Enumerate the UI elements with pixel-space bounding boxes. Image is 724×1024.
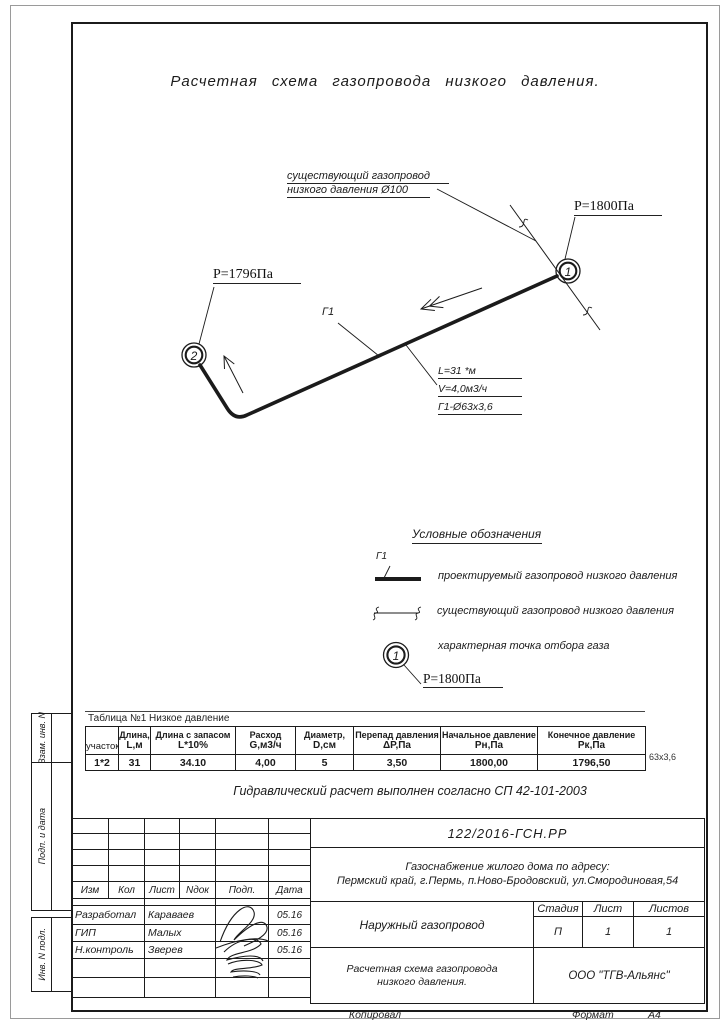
calc-table-block: Таблица №1 Низкое давление участок Длина…: [85, 711, 645, 771]
pipe-size-side-note: 63х3,6: [649, 752, 676, 762]
revision-empty-row: [72, 819, 311, 834]
dimension-note: L=31 *м V=4,0м3/ч Г1-Ø63х3,6: [438, 365, 522, 415]
legend-item-existing: существующий газопровод низкого давления: [437, 605, 674, 617]
sidebar-box-inv: Инв. N подл.: [31, 917, 72, 992]
sidebar-empty-cell: [52, 763, 71, 910]
col-header-start-pressure: Начальное давлениеРн,Па: [441, 727, 538, 755]
col-header-uchastok: участок: [86, 727, 119, 755]
company-name: ООО "ТГВ-Альянс": [534, 948, 705, 1004]
cell-length-margin: 34.10: [151, 755, 236, 771]
object-name: Наружный газопровод: [311, 902, 534, 948]
rev-header-data: Дата: [269, 882, 311, 899]
sheet-title-line1: Расчетная схема газопровода: [311, 963, 533, 976]
col-header-length: Длина,L,м: [119, 727, 151, 755]
calc-table-header-row: участок Длина,L,м Длина с запасомL*10% Р…: [86, 727, 646, 755]
legend-item-node: характерная точка отбора газа: [438, 640, 609, 652]
titleblock-main-table: 122/2016-ГСН.РР Газоснабжение жилого дом…: [310, 818, 705, 1004]
stage-value: П: [534, 917, 583, 948]
project-name-row: Газоснабжение жилого дома по адресу: Пер…: [311, 848, 705, 902]
pressure-start-label: Р=1800Па: [574, 199, 662, 216]
sheets-label: Листов: [634, 902, 705, 917]
col-header-flow: РасходG,м3/ч: [236, 727, 296, 755]
rev-header-izm: Изм: [72, 882, 109, 899]
cell-pressure-drop: 3,50: [354, 755, 441, 771]
sheets-value: 1: [634, 917, 705, 948]
dimension-flow: V=4,0м3/ч: [438, 383, 522, 397]
project-name: Газоснабжение жилого дома по адресу: Пер…: [311, 848, 705, 902]
drawing-title: Расчетная схема газопровода низкого давл…: [150, 73, 620, 90]
sheet-title-line2: низкого давления.: [311, 976, 533, 989]
sidebar-label-inv: Инв. N подл.: [37, 928, 47, 981]
existing-pipeline-label-line2: низкого давления Ø100: [287, 184, 430, 198]
revision-header-row: Изм Кол Лист Nдок Подп. Дата: [72, 882, 311, 899]
format-value: А4: [648, 1009, 661, 1021]
signer-name: Зверев: [145, 942, 216, 959]
calc-table-data-row: 1*2 31 34.10 4,00 5 3,50 1800,00 1796,50: [86, 755, 646, 771]
rev-header-kol: Кол: [109, 882, 145, 899]
existing-pipeline-label: существующий газопровод низкого давления…: [287, 170, 449, 198]
signer-role: Разработал: [72, 906, 145, 925]
sidebar-box-vzam: Взам. инв. N: [31, 713, 72, 764]
signature-cell: [216, 925, 269, 942]
rev-header-ndok: Nдок: [180, 882, 216, 899]
project-name-line2: Пермский край, г.Пермь, п.Ново-Бродовски…: [311, 875, 704, 889]
signature-empty-row: [72, 978, 311, 998]
signature-date: 05.16: [269, 942, 311, 959]
signature-empty-row: [72, 959, 311, 978]
rev-header-podp: Подп.: [216, 882, 269, 899]
col-header-pressure-drop: Перепад давленияΔР,Па: [354, 727, 441, 755]
cell-uchastok: 1*2: [86, 755, 119, 771]
cell-end-pressure: 1796,50: [538, 755, 646, 771]
signer-role: ГИП: [72, 925, 145, 942]
revision-thin-row: [72, 899, 311, 906]
copied-by-label: Копировал: [310, 1009, 440, 1021]
sheet-title: Расчетная схема газопровода низкого давл…: [311, 948, 534, 1004]
signer-name: Караваев: [145, 906, 216, 925]
format-label: Формат: [572, 1009, 614, 1021]
dimension-length: L=31 *м: [438, 365, 522, 379]
col-header-diameter: Диаметр,D,см: [296, 727, 354, 755]
titleblock-revision-table: Изм Кол Лист Nдок Подп. Дата Разработал …: [71, 818, 311, 998]
stage-header-row: Наружный газопровод Стадия Лист Листов: [311, 902, 705, 917]
rev-header-list: Лист: [145, 882, 180, 899]
sidebar-label-cell: Инв. N подл.: [32, 918, 52, 991]
legend-title: Условные обозначения: [412, 527, 542, 544]
legend-item-proposed: проектируемый газопровод низкого давлени…: [438, 570, 677, 582]
segment-label: Г1: [322, 306, 334, 318]
legend-flag-label: Г1: [376, 551, 387, 562]
revision-empty-row: [72, 866, 311, 882]
revision-empty-row: [72, 850, 311, 866]
cell-length: 31: [119, 755, 151, 771]
signer-role: Н.контроль: [72, 942, 145, 959]
signature-cell: [216, 942, 269, 959]
dimension-diameter: Г1-Ø63х3,6: [438, 401, 522, 415]
cell-diameter: 5: [296, 755, 354, 771]
legend-node-pressure: Р=1800Па: [423, 671, 503, 688]
drawing-sheet: 1 2 1: [0, 0, 724, 1024]
project-name-line1: Газоснабжение жилого дома по адресу:: [311, 861, 704, 875]
hydraulic-note: Гидравлический расчет выполнен согласно …: [190, 784, 630, 798]
revision-empty-row: [72, 834, 311, 850]
sidebar-label-podp: Подп. и дата: [37, 808, 47, 864]
cell-flow: 4,00: [236, 755, 296, 771]
doc-number-row: 122/2016-ГСН.РР: [311, 819, 705, 848]
col-header-length-margin: Длина с запасомL*10%: [151, 727, 236, 755]
sheet-title-row: Расчетная схема газопровода низкого давл…: [311, 948, 705, 1004]
sheet-label: Лист: [583, 902, 634, 917]
sidebar-empty-cell: [52, 714, 71, 763]
calc-table-caption: Таблица №1 Низкое давление: [85, 711, 645, 726]
sidebar-label-cell: Взам. инв. N: [32, 714, 52, 763]
doc-number: 122/2016-ГСН.РР: [311, 819, 705, 848]
signature-row: ГИП Малых 05.16: [72, 925, 311, 942]
signature-date: 05.16: [269, 925, 311, 942]
signature-cell: [216, 906, 269, 925]
stage-label: Стадия: [534, 902, 583, 917]
signature-row: Н.контроль Зверев 05.16: [72, 942, 311, 959]
col-header-end-pressure: Конечное давлениеРк,Па: [538, 727, 646, 755]
sheet-value: 1: [583, 917, 634, 948]
cell-start-pressure: 1800,00: [441, 755, 538, 771]
signature-row: Разработал Караваев 05.16: [72, 906, 311, 925]
sidebar-label-vzam: Взам. инв. N: [37, 712, 47, 764]
calc-table: участок Длина,L,м Длина с запасомL*10% Р…: [85, 726, 646, 771]
sidebar-label-cell: Подп. и дата: [32, 763, 52, 910]
existing-pipeline-label-line1: существующий газопровод: [287, 170, 449, 184]
pressure-end-label: Р=1796Па: [213, 267, 301, 284]
signature-date: 05.16: [269, 906, 311, 925]
sidebar-box-podp: Подп. и дата: [31, 762, 72, 911]
signer-name: Малых: [145, 925, 216, 942]
sidebar-empty-cell: [52, 918, 71, 991]
